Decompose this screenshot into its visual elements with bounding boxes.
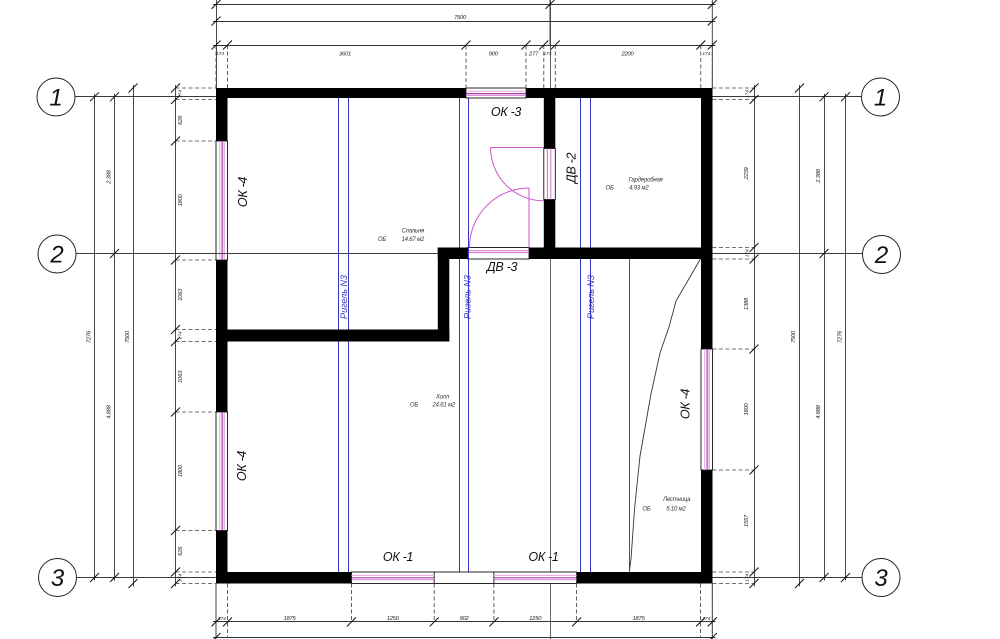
svg-text:Ригель N3: Ригель N3	[339, 275, 349, 319]
svg-text:ОК -1: ОК -1	[528, 550, 558, 564]
svg-text:1: 1	[874, 85, 887, 112]
svg-text:Холл: Холл	[435, 395, 450, 401]
svg-text:ОБ: ОБ	[410, 403, 418, 409]
svg-text:ОК -4: ОК -4	[235, 451, 249, 482]
svg-text:ОК -3: ОК -3	[491, 105, 522, 119]
svg-text:4.93 м2: 4.93 м2	[629, 185, 649, 191]
svg-text:7276: 7276	[838, 330, 844, 343]
svg-text:ОБ: ОБ	[378, 237, 386, 243]
svg-text:1800: 1800	[744, 402, 750, 415]
svg-text:ОБ: ОБ	[642, 507, 650, 513]
svg-text:2: 2	[49, 242, 63, 269]
svg-text:174: 174	[178, 331, 184, 339]
svg-text:2239: 2239	[744, 166, 750, 180]
svg-text:ОБ: ОБ	[606, 185, 614, 191]
svg-text:174: 174	[218, 616, 226, 622]
svg-text:174: 174	[178, 90, 184, 98]
svg-text:174: 174	[745, 90, 751, 98]
svg-text:1800: 1800	[178, 464, 184, 477]
svg-text:7500: 7500	[125, 330, 131, 343]
svg-text:Гардеробная: Гардеробная	[629, 177, 664, 183]
svg-text:24.61 м2: 24.61 м2	[432, 403, 456, 409]
svg-text:7500: 7500	[791, 330, 797, 343]
svg-text:900: 900	[489, 52, 499, 58]
svg-text:626: 626	[178, 115, 184, 125]
svg-text:ОК -1: ОК -1	[383, 550, 413, 564]
svg-text:Ригель N3: Ригель N3	[586, 275, 596, 319]
svg-text:1875: 1875	[633, 616, 646, 622]
svg-text:ДВ -3: ДВ -3	[485, 260, 518, 274]
svg-text:1800: 1800	[178, 193, 184, 206]
svg-text:626: 626	[178, 546, 184, 556]
svg-text:5.10 м2: 5.10 м2	[666, 507, 686, 513]
svg-text:1875: 1875	[283, 616, 296, 622]
svg-text:14.67 м2: 14.67 м2	[402, 237, 425, 243]
svg-text:2.388: 2.388	[816, 168, 822, 183]
svg-text:277: 277	[528, 52, 539, 58]
svg-text:3: 3	[874, 565, 888, 592]
svg-text:1250: 1250	[529, 616, 542, 622]
svg-text:3: 3	[51, 565, 65, 592]
svg-text:3601: 3601	[339, 52, 351, 58]
svg-text:174: 174	[745, 573, 751, 581]
svg-text:174: 174	[178, 573, 184, 581]
svg-text:Спальня: Спальня	[402, 229, 426, 235]
svg-text:174: 174	[745, 249, 751, 257]
svg-text:174: 174	[543, 51, 551, 57]
svg-text:1063: 1063	[178, 288, 184, 301]
svg-text:902: 902	[459, 616, 469, 622]
svg-text:4.888: 4.888	[107, 404, 113, 418]
svg-text:174: 174	[702, 51, 710, 57]
svg-text:2: 2	[874, 242, 888, 269]
svg-text:ОК -4: ОК -4	[236, 177, 250, 208]
svg-text:1250: 1250	[387, 616, 400, 622]
svg-text:1388: 1388	[744, 297, 750, 310]
svg-text:ДВ -2: ДВ -2	[565, 153, 579, 186]
svg-text:4.888: 4.888	[816, 404, 822, 418]
svg-text:174: 174	[702, 616, 710, 622]
svg-text:1063: 1063	[178, 370, 184, 383]
svg-text:7500: 7500	[454, 15, 467, 21]
svg-text:7276: 7276	[87, 330, 93, 343]
svg-text:Лестница: Лестница	[662, 497, 691, 503]
svg-text:2.388: 2.388	[107, 169, 113, 184]
svg-text:174: 174	[216, 51, 224, 57]
svg-text:1: 1	[49, 85, 62, 112]
svg-text:Ригель N3: Ригель N3	[463, 275, 473, 319]
svg-text:2200: 2200	[620, 52, 634, 58]
svg-text:1557: 1557	[744, 514, 750, 527]
svg-text:ОК -4: ОК -4	[679, 389, 693, 420]
